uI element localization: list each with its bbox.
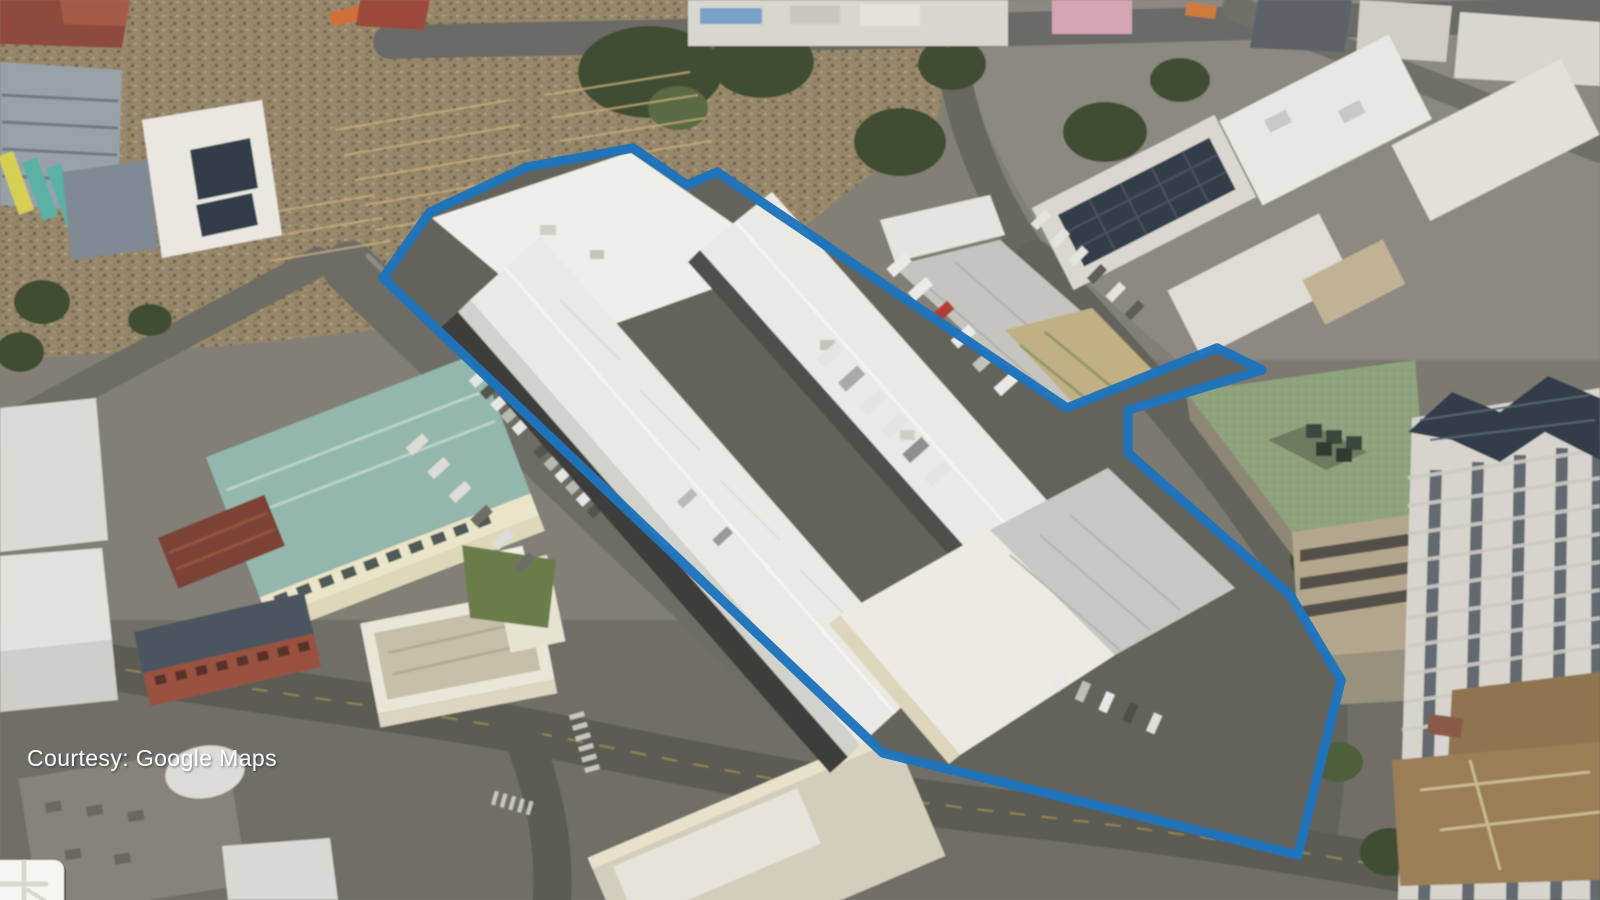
far-left-white-roof (0, 548, 112, 652)
canopy-building (222, 838, 338, 900)
roof-vent (590, 250, 604, 259)
white-shed-2 (1454, 12, 1600, 86)
roof-vent (540, 225, 556, 235)
minimap-inset[interactable] (0, 860, 66, 900)
aerial-scene: Courtesy: Google Maps (0, 0, 1600, 900)
red-roof-piece (60, 0, 130, 26)
courtesy-caption: Courtesy: Google Maps (27, 745, 277, 771)
dark-slate-building (1250, 0, 1352, 52)
aerial-photo-frame: Courtesy: Google Maps (0, 0, 1600, 900)
far-left-gray-roof (0, 640, 118, 712)
pink-building (1052, 0, 1132, 34)
shop (860, 4, 920, 26)
blue-gray-building (62, 160, 158, 260)
shop (790, 6, 840, 24)
high-rise-building (1392, 376, 1600, 900)
white-building-mid-left (0, 398, 108, 552)
white-solar-building (142, 100, 282, 258)
blue-awning-shop (700, 8, 762, 24)
roof-vent (900, 430, 915, 440)
